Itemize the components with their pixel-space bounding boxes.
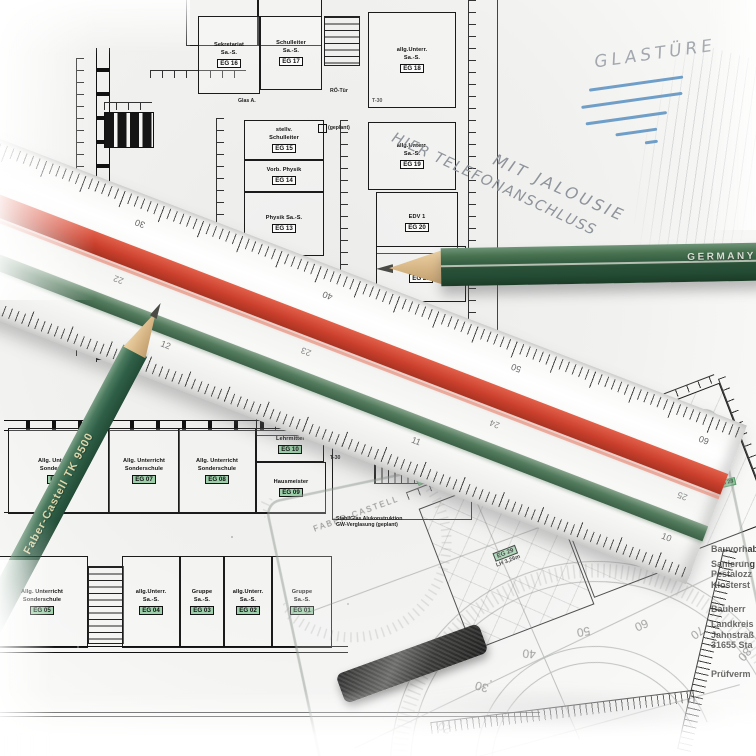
room-eg16: SekretariatSa.-S.EG 16	[198, 16, 260, 94]
paper-speck	[231, 536, 233, 538]
blueprint-photo: SekretariatSa.-S.EG 16 SchulleiterSa.-S.…	[0, 0, 756, 756]
room-eg17: SchulleiterSa.-S.EG 17	[260, 16, 322, 90]
room-eg07: Allg. UnterrichtSonderschuleEG 07	[108, 428, 180, 514]
stairs-top	[324, 16, 360, 66]
note-geplant: (geplant)	[328, 125, 350, 131]
room-tag: EG 16	[217, 59, 241, 68]
room-eg08: Allg. UnterrichtSonderschuleEG 08	[178, 428, 256, 514]
room-eg03: GruppeSa.-S.EG 03	[180, 556, 224, 648]
legend-dimension	[104, 102, 152, 110]
room-eg02: allg.Unterr.Sa.-S.EG 02	[224, 556, 272, 648]
pencil-lead-tip	[150, 301, 165, 319]
svg-text:50: 50	[575, 624, 591, 640]
room-eg20: EDV 1EG 20	[376, 192, 458, 254]
room-eg15: stellv.SchulleiterEG 15	[244, 120, 324, 160]
pencil-wood-cone	[389, 249, 446, 286]
pencil-horizontal: GERMANY	[376, 243, 756, 288]
pencil-body: GERMANY	[441, 243, 756, 287]
pencil-brand-text: GERMANY	[687, 251, 756, 263]
room-name: Sekretariat	[214, 42, 244, 49]
vignette-top	[0, 0, 190, 55]
paper-speck	[77, 646, 79, 648]
room-eg14: Vorb. PhysikEG 14	[244, 160, 324, 192]
legend-grid	[104, 112, 154, 148]
pencil-lead-tip	[376, 264, 393, 273]
room-eg18: allg.Unterr.Sa.-S.EG 18	[368, 12, 456, 108]
construction-note: Stahl/Glas Alukonstruktion GW-Verglasung…	[336, 516, 402, 528]
geplant-symbol	[318, 124, 327, 133]
note-glas-a: Glas A.	[238, 98, 256, 104]
svg-text:40: 40	[522, 646, 537, 661]
room-eg04: allg.Unterr.Sa.-S.EG 04	[122, 556, 180, 648]
stairs-mid	[88, 566, 124, 644]
note-ro-tuer: RÖ-Tür	[330, 88, 348, 94]
